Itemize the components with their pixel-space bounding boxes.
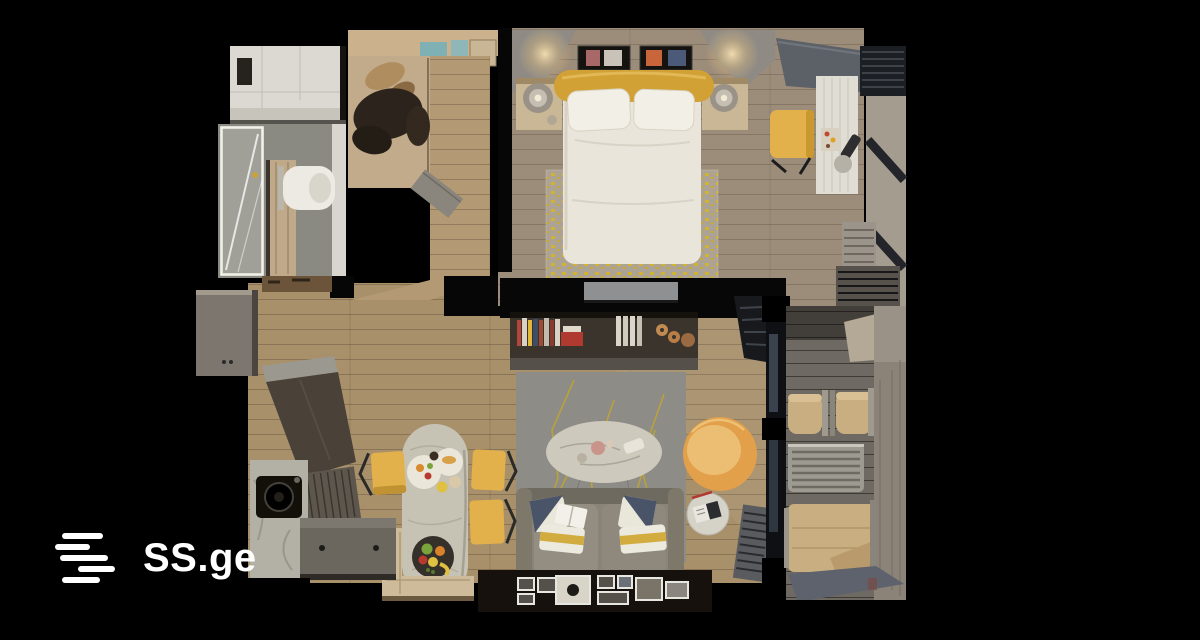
frame-art-circle [567,584,579,596]
wall-art-right [640,46,692,70]
kitchen-wall-top [262,276,332,292]
pillow-yellow-right [619,524,667,554]
double-bed [554,70,714,264]
balcony-chair-left [788,394,822,434]
ssge-logo-icon [55,530,117,586]
pillow-right [633,89,694,131]
yellow-armchair [683,417,757,491]
faucet [252,172,258,178]
chair-arm-bar [822,390,828,436]
tv-panel [584,282,678,300]
teddy-bear [681,333,695,347]
stacked-books [561,332,583,346]
wall-edge [340,46,346,124]
toilet [278,166,335,210]
door-frame [266,160,270,276]
table-decor [591,441,605,455]
window-glass-upper [769,334,778,412]
wall-art-left [578,46,630,70]
ssge-watermark: SS.ge [55,530,257,586]
balcony-table [788,444,864,492]
bathroom-right-wall [332,124,346,278]
vanity-shadow [230,108,346,122]
jar [430,452,439,461]
yellow-cup [437,482,448,493]
bedroom-left-wall [498,28,512,272]
wall-lamp-glow-right [705,27,759,81]
bottom-counter [300,518,396,580]
fruit-bowl [412,536,454,578]
window-blinds-top [860,46,906,96]
window-glass-lower [769,440,778,532]
bathroom [218,46,346,278]
dining-table [402,424,468,598]
lounger [784,500,876,578]
sofa-arm-right [668,488,684,580]
pillow-left [567,88,631,131]
coffee-table [546,421,662,483]
kitchen-cabinet [196,290,258,376]
shower [220,126,264,276]
pillow-yellow-left [539,524,585,554]
bookshelf [510,312,698,370]
balcony-chair-right [836,392,872,434]
wall-cabinet [237,58,252,85]
partition-wall [230,120,346,124]
faucet [294,477,300,483]
marble-counter [250,460,308,580]
floor-picture-frames [478,570,712,612]
desk [816,76,862,194]
magazine [821,128,839,151]
screenshot-root: SS.ge [0,0,1200,640]
hall-planks [430,56,490,280]
cabinet-ribbed-front [300,466,361,525]
bedroom-radiator [836,266,900,308]
balcony [778,306,910,640]
wall-stub-1 [330,276,354,298]
ssge-logo-text: SS.ge [143,538,257,578]
side-table [687,492,729,535]
sofa [516,488,684,580]
